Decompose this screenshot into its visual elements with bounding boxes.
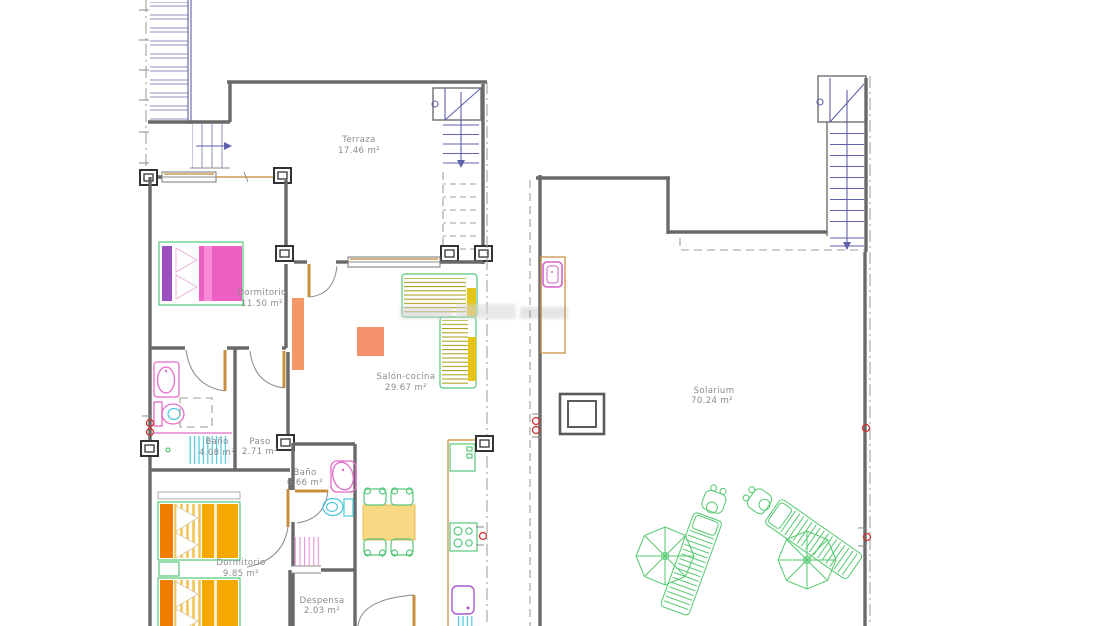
solarium-plan: Solarium 70.24 m² (530, 76, 871, 626)
door-bathroom1 (186, 350, 225, 391)
room-bano1: Baño 4.08 m² (153, 348, 235, 470)
single-bed-2 (158, 578, 240, 626)
sun-lounger (660, 482, 733, 616)
room-label-bano1: Baño (205, 437, 228, 447)
solarium-sink-counter (541, 257, 565, 353)
room-area-dormitorio1: 11.50 m² (241, 299, 283, 309)
room-label-dormitorio2: Dormitorio (216, 558, 265, 568)
room-area-bano2: 6.66 m² (287, 478, 323, 488)
room-label-bano2: Baño (293, 468, 316, 478)
wall-anchor (441, 246, 458, 261)
room-area-paso: 2.71 m² (242, 447, 278, 457)
plumbing-marker (480, 533, 487, 540)
watermark (400, 304, 568, 319)
kitchen-sink (452, 586, 474, 614)
door-terraza-to-salon (309, 264, 337, 297)
floor-plan-drawing: Terraza 17.46 m² (0, 0, 1110, 626)
bedside-table (159, 562, 179, 576)
exterior-stair-top-left (139, 0, 232, 176)
drain-point (166, 448, 170, 452)
wall-anchor (276, 246, 293, 261)
wall-anchor (274, 168, 291, 183)
room-area-despensa: 2.03 m² (304, 606, 340, 616)
chair (391, 539, 413, 556)
room-area-salon: 29.67 m² (385, 383, 427, 393)
room-salon-cocina: Salón-cocina 29.67 m² (292, 274, 568, 393)
skylight-shaft (560, 394, 604, 434)
wall-anchor (476, 436, 493, 451)
room-label-salon: Salón-cocina (377, 371, 436, 382)
room-label-terraza: Terraza (341, 135, 375, 145)
washbasin (330, 460, 357, 492)
room-despensa: Despensa 2.03 m² (299, 596, 344, 616)
lower-floor-plan: Terraza 17.46 m² (139, 0, 568, 626)
double-bed (159, 242, 243, 305)
shower (294, 537, 322, 566)
sofa-l-shape (402, 274, 477, 388)
room-bano2: Baño 6.66 m² (287, 460, 356, 566)
parasol (778, 531, 836, 589)
dishwasher (455, 616, 473, 626)
room-area-terraza: 17.46 m² (338, 146, 380, 156)
shower-tray-outline (180, 398, 212, 427)
sun-loungers (636, 480, 863, 616)
salon-window (348, 257, 440, 267)
floor-plan-sheet: Terraza 17.46 m² (0, 0, 1110, 626)
toilet (323, 499, 353, 517)
single-bed-1 (158, 502, 240, 560)
room-dormitorio1: Dormitorio 11.50 m² (159, 242, 287, 309)
wall-anchor (141, 441, 158, 456)
dining-set (363, 488, 415, 556)
wall-anchor (475, 246, 492, 261)
room-paso: Paso 2.71 m² (242, 437, 278, 457)
bedroom1-window (162, 172, 216, 182)
door-bedroom1 (250, 351, 284, 388)
door-entrance (358, 595, 414, 626)
room-area-bano1: 4.08 m² (199, 448, 235, 458)
room-area-solarium: 70.24 m² (691, 396, 733, 406)
room-label-solarium: Solarium (694, 386, 735, 396)
door-bedroom2 (247, 489, 288, 567)
sun-lounger (738, 480, 863, 580)
room-dormitorio2: Dormitorio 9.85 m² (158, 492, 266, 626)
room-label-paso: Paso (249, 437, 270, 447)
kitchen (448, 436, 493, 626)
room-area-dormitorio2: 9.85 m² (223, 569, 259, 579)
parasol (636, 527, 694, 585)
chair (364, 488, 386, 505)
chair (391, 488, 413, 505)
shelf (158, 492, 240, 499)
washbasin (154, 362, 179, 397)
dining-table (363, 505, 415, 540)
chair (364, 539, 386, 556)
room-label-dormitorio1: Dormitorio (237, 288, 286, 298)
coffee-table (357, 327, 384, 356)
room-label-despensa: Despensa (299, 596, 344, 606)
fridge (450, 444, 475, 471)
stove (450, 523, 477, 551)
sideboard (292, 298, 304, 370)
